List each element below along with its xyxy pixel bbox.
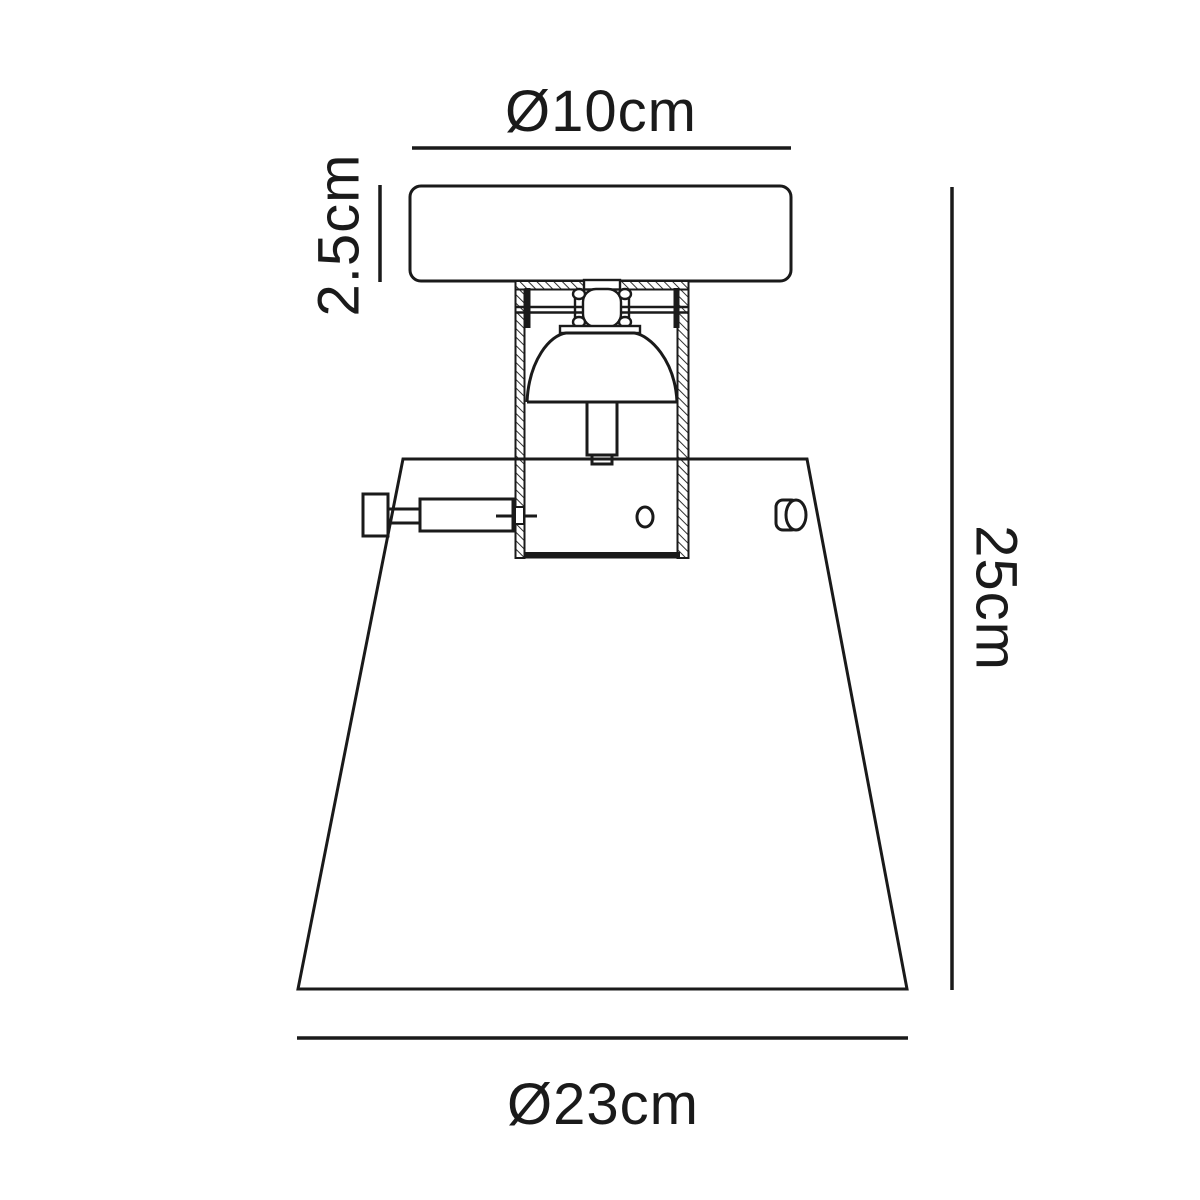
side-pin [776,500,806,530]
dimension-top-diameter: Ø10cm [412,79,791,148]
canopy-plate [410,186,791,281]
dimension-shade-diameter: Ø23cm [297,1038,908,1137]
ceiling-canopy [410,186,791,281]
holder-bottom-cap [524,552,680,559]
dim-label-top-diameter: Ø10cm [505,79,697,144]
dim-label-canopy-height: 2.5cm [307,154,372,317]
diagram-canvas: Ø10cm 2.5cm 25cm Ø23cm [0,0,1200,1200]
shade-outline [298,459,907,989]
dim-label-overall-height: 25cm [964,525,1029,671]
dim-label-shade-diameter: Ø23cm [507,1072,699,1137]
side-pin-head [786,500,806,530]
wall-screw-boss [515,507,524,524]
dimension-overall-height: 25cm [952,187,1029,990]
insulator-barrel [583,289,621,327]
lamp-holder [516,280,689,559]
thumbscrew-knob [363,494,388,536]
bulb-dome [527,333,677,402]
fixture-technical-drawing: Ø10cm 2.5cm 25cm Ø23cm [0,0,1200,1200]
screw-hole [637,507,653,527]
dimension-canopy-height: 2.5cm [307,154,381,317]
socket-stem [587,402,617,455]
terminal-nub-top-right [619,289,631,299]
terminal-nub-top-left [573,289,585,299]
